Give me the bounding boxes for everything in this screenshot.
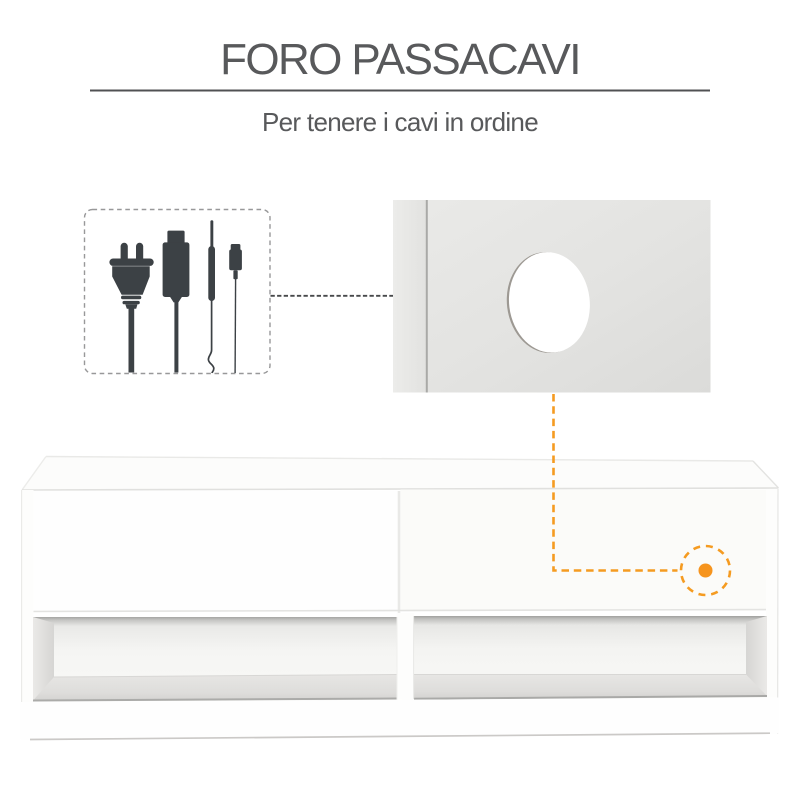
svg-text:FORO PASSACAVI: FORO PASSACAVI [220, 35, 580, 84]
svg-text:Per tenere i cavi in ordine: Per tenere i cavi in ordine [262, 107, 538, 137]
